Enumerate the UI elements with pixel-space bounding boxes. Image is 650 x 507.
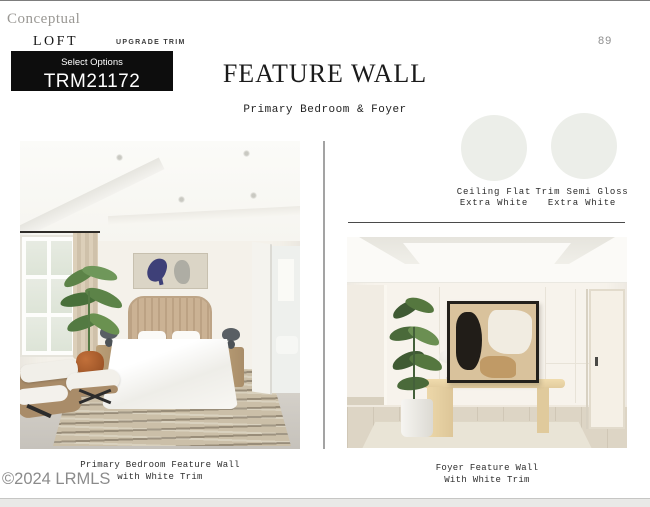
door-frame-shadow xyxy=(586,289,588,429)
caption-line: With White Trim xyxy=(347,474,627,486)
window-pane xyxy=(26,241,47,275)
swatch-ceiling-flat xyxy=(461,115,527,181)
wall-molding xyxy=(575,289,576,403)
console-table-leg-right xyxy=(537,387,549,433)
window-pane xyxy=(51,317,72,351)
page-title: FEATURE WALL xyxy=(0,59,650,89)
art-black-shape xyxy=(456,312,482,370)
bedroom-artwork xyxy=(133,253,208,289)
caption-line: Foyer Feature Wall xyxy=(347,462,627,474)
baseboard xyxy=(347,405,627,407)
swatch-label-line: Extra White xyxy=(523,198,641,209)
vertical-divider xyxy=(323,141,325,449)
swatch-label-trim: Trim Semi Gloss Extra White xyxy=(523,187,641,209)
horizontal-rule xyxy=(348,222,625,223)
recessed-light xyxy=(243,150,250,157)
plant-pot xyxy=(401,399,433,437)
plant-stem xyxy=(88,291,90,355)
table-lamp-left-base xyxy=(105,338,113,347)
window-pane xyxy=(51,241,72,275)
tray-ceiling-inner xyxy=(403,243,571,264)
foyer-door xyxy=(589,289,625,429)
upgrade-trim-label: UPGRADE TRIM xyxy=(116,39,186,46)
art-shape xyxy=(174,260,190,284)
foyer-rug xyxy=(362,421,592,448)
plant-leaf xyxy=(406,322,442,349)
catalog-page: Conceptual LOFT UPGRADE TRIM Select Opti… xyxy=(0,0,650,507)
recessed-light xyxy=(250,192,257,199)
page-number: 89 xyxy=(598,35,612,47)
recessed-light xyxy=(178,196,185,203)
bed xyxy=(102,339,238,409)
plant-stem xyxy=(413,327,415,403)
mls-watermark: ©2024 LRMLS xyxy=(2,469,110,489)
bedroom-photo xyxy=(20,141,300,449)
collection-label: LOFT xyxy=(33,34,78,50)
ceiling-line xyxy=(347,282,627,283)
foyer-photo xyxy=(347,237,627,448)
foyer-caption: Foyer Feature Wall With White Trim xyxy=(347,462,627,486)
window-pane xyxy=(26,317,47,351)
bedroom-ceiling xyxy=(20,141,300,241)
art-white-shape xyxy=(488,310,532,354)
window-pane xyxy=(26,279,47,313)
art-tan-shape xyxy=(480,356,516,378)
foyer-artwork xyxy=(447,301,539,383)
door-handle xyxy=(595,357,598,366)
door-leaf xyxy=(252,242,272,395)
bathtub xyxy=(276,336,298,354)
recessed-light xyxy=(116,154,123,161)
conceptual-label: Conceptual xyxy=(7,11,80,28)
page-subtitle: Primary Bedroom & Foyer xyxy=(0,104,650,116)
bathroom-window xyxy=(278,259,294,301)
swatch-label-line: Trim Semi Gloss xyxy=(523,187,641,198)
wall-molding xyxy=(545,363,589,364)
swatch-trim-semi-gloss xyxy=(551,113,617,179)
